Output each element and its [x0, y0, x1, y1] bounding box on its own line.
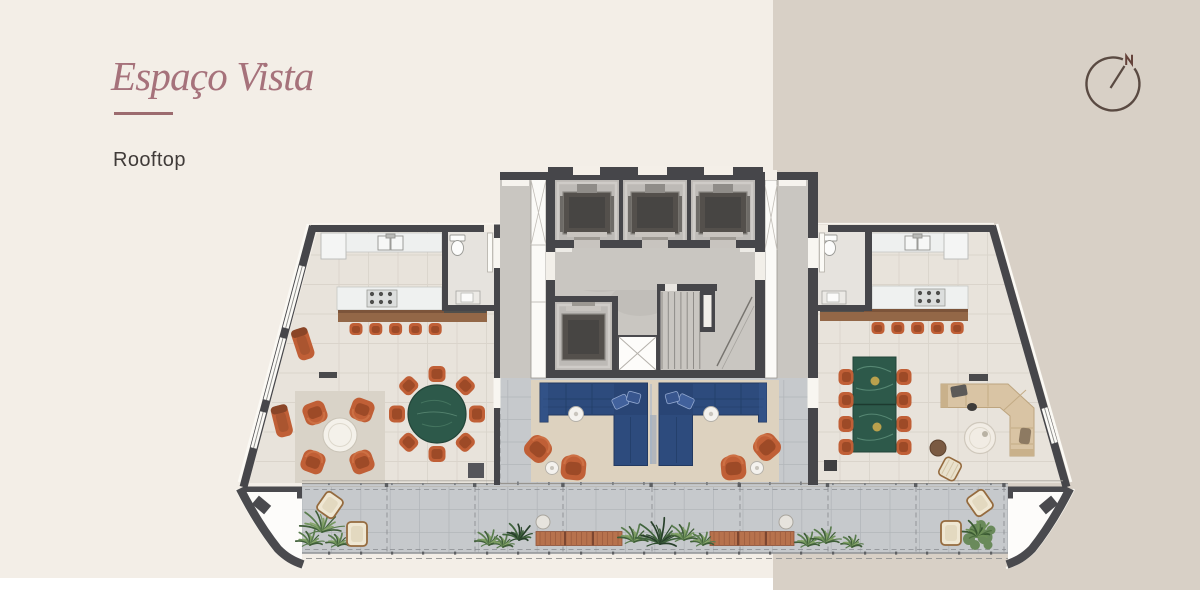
svg-text:Espaço Vista: Espaço Vista	[110, 53, 314, 99]
svg-text:Rooftop: Rooftop	[113, 149, 186, 171]
